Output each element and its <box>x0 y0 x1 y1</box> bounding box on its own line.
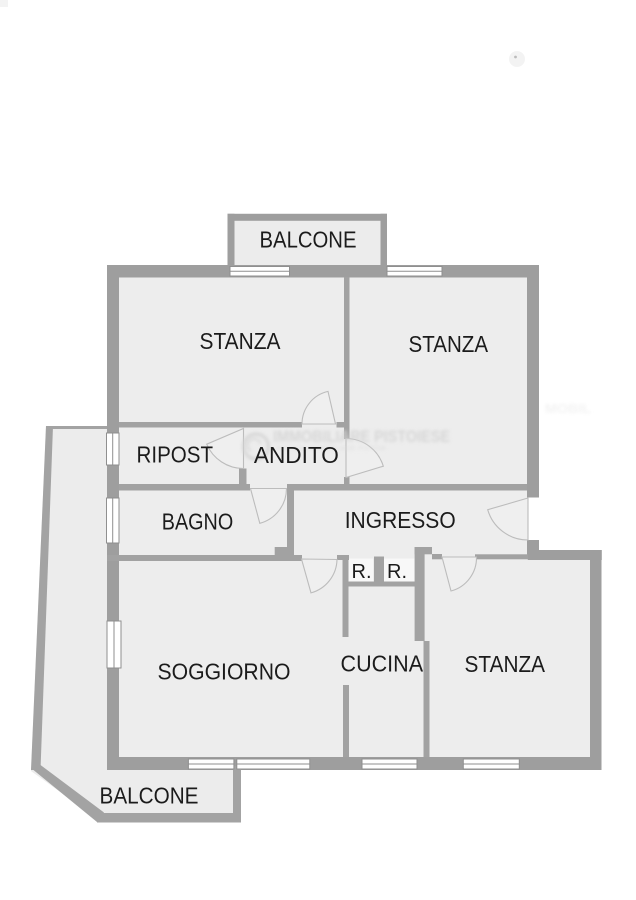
svg-text:STANZA: STANZA <box>409 331 489 357</box>
svg-text:RIPOST: RIPOST <box>137 442 214 468</box>
svg-text:INGRESSO: INGRESSO <box>345 507 456 533</box>
svg-text:BALCONE: BALCONE <box>100 783 199 809</box>
svg-text:MOBIL: MOBIL <box>545 401 591 416</box>
svg-text:BALCONE: BALCONE <box>260 227 357 253</box>
svg-text:BAGNO: BAGNO <box>162 509 234 535</box>
svg-text:R.: R. <box>387 561 407 583</box>
svg-text:SOGGIORNO: SOGGIORNO <box>158 659 291 685</box>
svg-text:CUCINA: CUCINA <box>341 651 424 677</box>
svg-text:R.: R. <box>352 561 372 583</box>
svg-text:ANDITO: ANDITO <box>254 442 339 468</box>
svg-text:STANZA: STANZA <box>465 651 546 677</box>
svg-text:STANZA: STANZA <box>200 328 281 354</box>
